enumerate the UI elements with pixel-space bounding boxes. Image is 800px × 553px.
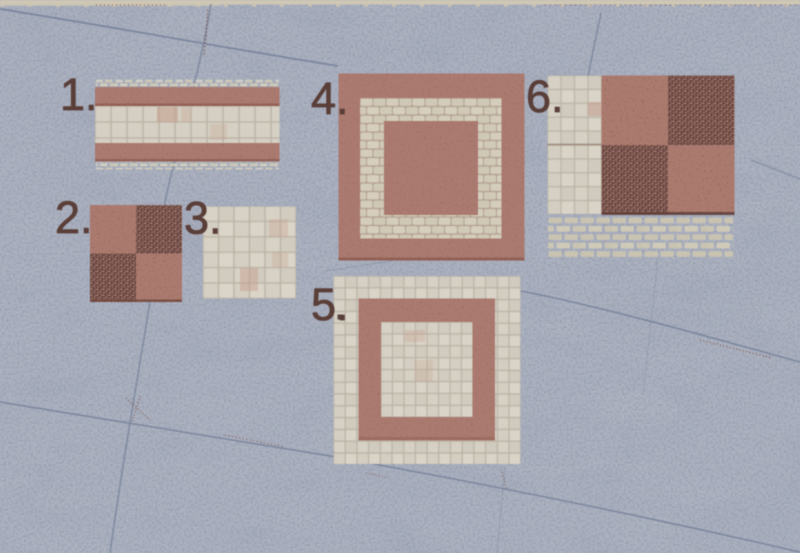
- svg-text:4.: 4.: [311, 73, 349, 124]
- svg-text:3.: 3.: [184, 193, 222, 244]
- svg-text:2.: 2.: [55, 192, 93, 243]
- svg-text:6.: 6.: [526, 71, 564, 122]
- svg-text:5.: 5.: [311, 279, 349, 330]
- svg-text:1.: 1.: [60, 69, 98, 120]
